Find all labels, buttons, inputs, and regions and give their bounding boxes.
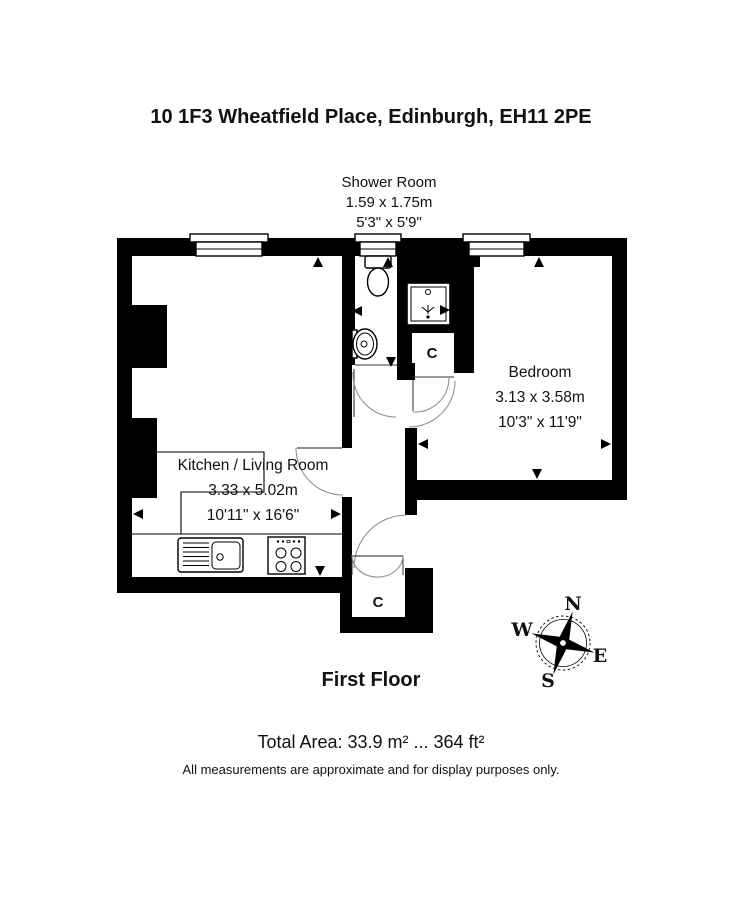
floorplan-page: 10 1F3 Wheatfield Place, Edinburgh, EH11… (0, 0, 742, 900)
wall-segment (117, 256, 132, 593)
wall-segment (117, 577, 352, 593)
arrow-left-icon (418, 439, 428, 449)
arrow-left-icon (133, 509, 143, 519)
compass-east-label: E (593, 645, 607, 667)
wall-segment (454, 333, 474, 373)
cupboard-hall-label: C (427, 345, 438, 362)
bedroom-name: Bedroom (509, 364, 572, 381)
sink-icon (178, 538, 243, 572)
hob-icon (268, 537, 305, 574)
bedroom-dims-metric: 3.13 x 3.58m (495, 389, 585, 406)
wall-segment (397, 327, 412, 373)
arrow-down-icon (315, 566, 325, 576)
shower-room-name: Shower Room (341, 174, 436, 191)
arrow-right-icon (601, 439, 611, 449)
arrow-up-icon (313, 257, 323, 267)
compass-rose: N W E S (510, 593, 607, 692)
window-shower-room (355, 234, 401, 256)
kitchen-living-dims-metric: 3.33 x 5.02m (208, 482, 298, 499)
window-kitchen (190, 234, 268, 256)
door-cupboard-entrance (352, 555, 403, 577)
compass-west-label: W (510, 619, 533, 641)
door-shower-room (353, 365, 397, 417)
total-area-label: Total Area: 33.9 m² ... 364 ft² (257, 732, 484, 752)
shower-room-dims-imperial: 5'3" x 5'9" (356, 214, 422, 231)
wall-segment (132, 305, 167, 368)
wall-segment (342, 365, 352, 448)
wall-segment (474, 256, 480, 267)
basin-icon (352, 329, 377, 359)
wall-segment (340, 617, 433, 633)
wall-segment (612, 256, 627, 480)
bedroom-dims-imperial: 10'3" x 11'9" (498, 414, 582, 431)
kitchen-living-dims-imperial: 10'11" x 16'6" (207, 507, 299, 524)
wall-segment (405, 428, 417, 515)
shower-tray-icon (407, 283, 450, 325)
wall-segment (342, 497, 352, 577)
shower-room-dims-metric: 1.59 x 1.75m (346, 194, 433, 211)
window-bedroom (463, 234, 530, 256)
arrow-right-icon (331, 509, 341, 519)
kitchen-living-name: Kitchen / Living Room (178, 457, 329, 474)
cupboard-entrance-label: C (373, 594, 384, 611)
arrow-down-icon (532, 469, 542, 479)
walls (117, 238, 627, 633)
compass-north-label: N (564, 593, 581, 615)
arrow-up-icon (534, 257, 544, 267)
floorplan-svg: 10 1F3 Wheatfield Place, Edinburgh, EH11… (0, 0, 742, 900)
wall-segment (417, 480, 627, 500)
wall-segment (132, 418, 157, 498)
compass-south-label: S (541, 670, 555, 692)
disclaimer-text: All measurements are approximate and for… (183, 762, 560, 777)
floor-label: First Floor (322, 669, 421, 691)
page-title: 10 1F3 Wheatfield Place, Edinburgh, EH11… (150, 106, 591, 128)
door-entrance (354, 515, 407, 568)
compass-star-icon (522, 602, 604, 684)
